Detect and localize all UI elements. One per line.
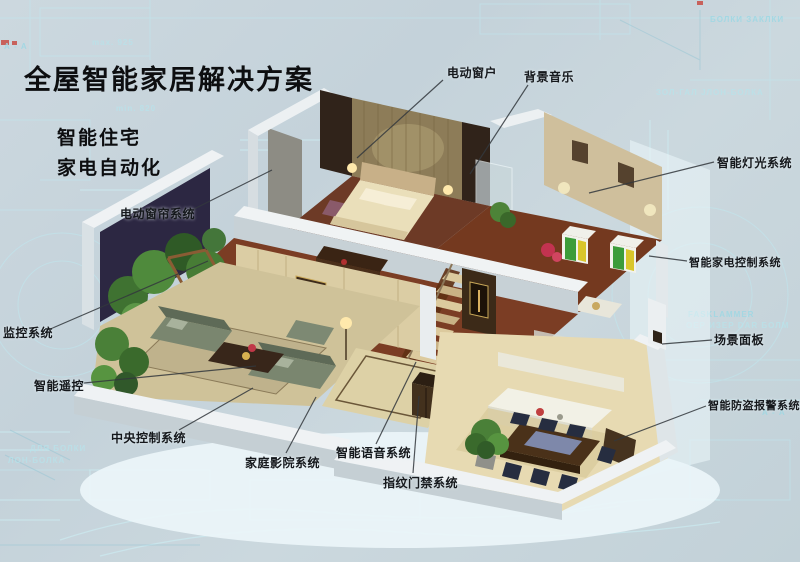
callout-line-scene-panel [662,340,712,344]
callout-line-background-music [470,85,528,174]
subtitle-line-1: 智能住宅 [57,123,141,150]
callout-label-monitoring-system: 监控系统 [3,324,53,341]
callout-label-electric-window: 电动窗户 [447,64,497,81]
callout-line-central-control-system [179,388,253,430]
callout-line-electric-curtain-system [188,170,272,212]
callout-line-fingerprint-access-system [413,396,419,473]
callout-line-home-theater-system [286,397,316,453]
smart-home-poster: А - А max. 925 min. 820 БОЛКИ ЗАКЛКИ ЗОЛ… [0,0,800,562]
callout-line-smart-voice-system [376,362,416,444]
callout-line-smart-remote-control [84,366,256,383]
callout-label-scene-panel: 场景面板 [714,331,764,348]
callout-line-smart-appliance-control-system [649,256,687,261]
callout-line-smart-lighting-system [589,162,714,193]
callout-label-smart-remote-control: 智能遥控 [34,377,84,394]
callout-line-electric-window [357,80,443,158]
subtitle-line-2: 家电自动化 [57,153,162,180]
callout-label-background-music: 背景音乐 [524,68,574,85]
callout-label-fingerprint-access-system: 指纹门禁系统 [383,474,458,491]
callout-label-smart-appliance-control-system: 智能家电控制系统 [689,254,781,270]
callout-label-smart-voice-system: 智能语音系统 [336,444,411,461]
callout-line-smart-burglar-alarm-system [614,406,706,441]
callout-line-monitoring-system [48,261,208,330]
callout-label-smart-burglar-alarm-system: 智能防盗报警系统 [708,397,800,413]
callout-label-electric-curtain-system: 电动窗帘系统 [120,205,195,222]
page-title: 全屋智能家居解决方案 [24,58,314,97]
callout-label-central-control-system: 中央控制系统 [111,429,186,446]
callout-label-smart-lighting-system: 智能灯光系统 [717,154,792,171]
callout-label-home-theater-system: 家庭影院系统 [245,454,320,471]
